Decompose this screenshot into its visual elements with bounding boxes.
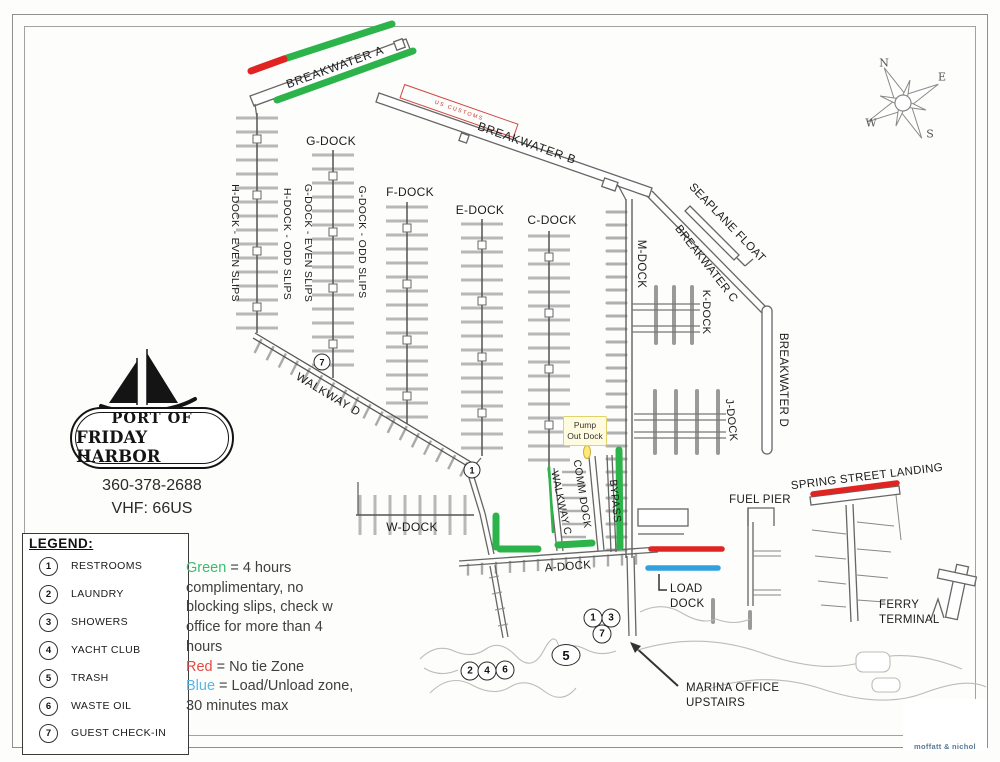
legend-label-yacht-club: YACHT CLUB (71, 644, 141, 656)
green-key-word: Green (186, 560, 226, 576)
brand-logo: moffatt & nichol (903, 699, 987, 751)
legend-label-waste-oil: WASTE OIL (71, 700, 131, 712)
note-line-green: Green = 4 hours (186, 559, 411, 579)
color-key-notes: Green = 4 hours complimentary, no blocki… (186, 559, 411, 717)
legend-item-guest-checkin: 7 GUEST CHECK-IN (0, 724, 185, 742)
legend-title: LEGEND: (29, 536, 93, 551)
legend-item-laundry: 2 LAUNDRY (0, 585, 185, 603)
label-g-dock-even: G-DOCK - EVEN SLIPS (302, 184, 314, 302)
note-line: blocking slips, check w (186, 598, 411, 618)
legend-label-showers: SHOWERS (71, 616, 128, 628)
note-line: complimentary, no (186, 579, 411, 599)
label-c-dock: C-DOCK (527, 213, 576, 227)
fuel-pier-structure (748, 508, 781, 628)
marina-office-arrow (630, 642, 678, 686)
map-marker-guest-checkin-walkway: 7 (314, 354, 331, 371)
label-ferry-terminal-line2: TERMINAL (879, 614, 940, 626)
ferry-terminal-structure (931, 564, 976, 619)
port-logo-inner: PORT OF FRIDAY HARBOR (75, 412, 229, 464)
label-f-dock: F-DOCK (386, 185, 434, 199)
legend-marker-2: 2 (39, 585, 58, 604)
label-fuel-pier: FUEL PIER (729, 494, 791, 506)
legend-marker-1: 1 (39, 557, 58, 576)
red-key-rest: = No tie Zone (213, 659, 304, 675)
blue-key-rest: = Load/Unload zone, (215, 678, 353, 694)
brand-name: moffatt & nichol (914, 742, 976, 751)
green-zone-walkway-c-foot (558, 543, 592, 545)
compass-w: W (865, 117, 876, 130)
legend-marker-4: 4 (39, 641, 58, 660)
label-h-dock-even: H-DOCK - EVEN SLIPS (229, 184, 241, 302)
sailboat-icon (101, 349, 195, 412)
legend-marker-6: 6 (39, 697, 58, 716)
port-logo-line2: FRIDAY HARBOR (76, 428, 228, 466)
note-line-blue: Blue = Load/Unload zone, (186, 677, 411, 697)
label-k-dock: K-DOCK (700, 290, 712, 335)
note-line: office for more than 4 (186, 618, 411, 638)
map-marker-7: 7 (593, 625, 612, 644)
red-zone-breakwater-a (251, 59, 284, 71)
legend-marker-5: 5 (39, 669, 58, 688)
legend-item-trash: 5 TRASH (0, 669, 185, 687)
port-vhf: VHF: 66US (112, 500, 193, 518)
label-breakwater-d: BREAKWATER D (777, 333, 789, 427)
legend-label-laundry: LAUNDRY (71, 588, 124, 600)
note-line-red: Red = No tie Zone (186, 658, 411, 678)
map-marker-5: 5 (552, 644, 581, 666)
blue-key-word: Blue (186, 678, 215, 694)
green-key-rest: = 4 hours (226, 560, 291, 576)
pump-out-dock-box: Pump Out Dock (563, 416, 607, 446)
label-h-dock-odd: H-DOCK - ODD SLIPS (281, 188, 293, 300)
launch-pier (489, 565, 508, 638)
map-marker-restrooms-walkway: 1 (464, 462, 481, 479)
map-marker-6: 6 (496, 661, 515, 680)
label-ferry-terminal-line1: FERRY (879, 599, 919, 611)
legend-marker-7: 7 (39, 724, 58, 743)
legend-label-guest-checkin: GUEST CHECK-IN (71, 727, 166, 739)
label-e-dock: E-DOCK (456, 203, 504, 217)
port-logo: PORT OF FRIDAY HARBOR (70, 407, 234, 469)
label-load-dock-line1: LOAD (670, 583, 703, 595)
label-g-dock: G-DOCK (306, 134, 356, 148)
note-line: 30 minutes max (186, 697, 411, 717)
legend-item-yacht-club: 4 YACHT CLUB (0, 641, 185, 659)
pump-out-line2: Out Dock (567, 431, 602, 442)
label-m-dock: M-DOCK (635, 240, 647, 288)
port-logo-line1: PORT OF (111, 410, 192, 427)
label-g-dock-odd: G-DOCK - ODD SLIPS (356, 186, 368, 299)
compass-rose-icon (849, 49, 957, 157)
legend-label-trash: TRASH (71, 672, 109, 684)
breakwater-d-structure (762, 306, 772, 454)
compass-s: S (926, 128, 934, 141)
label-marina-office-line1: MARINA OFFICE (686, 682, 779, 694)
red-key-word: Red (186, 659, 213, 675)
compass-n: N (879, 57, 889, 70)
port-phone: 360-378-2688 (102, 477, 202, 495)
label-marina-office-line2: UPSTAIRS (686, 697, 745, 709)
map-marker-4: 4 (478, 662, 497, 681)
legend-item-showers: 3 SHOWERS (0, 613, 185, 631)
compass-e: E (938, 71, 946, 84)
comm-dock-structure (589, 456, 604, 551)
dock-linework (236, 113, 726, 576)
marina-map-page: BREAKWATER A BREAKWATER B US CUSTOMS SEA… (0, 0, 1000, 762)
label-load-dock-line2: DOCK (670, 598, 704, 610)
pump-out-line1: Pump (574, 420, 596, 431)
label-w-dock: W-DOCK (386, 520, 438, 534)
note-line: hours (186, 638, 411, 658)
legend-item-waste-oil: 6 WASTE OIL (0, 697, 185, 715)
legend-marker-3: 3 (39, 613, 58, 632)
legend-item-restrooms: 1 RESTROOMS (0, 557, 185, 575)
legend-label-restrooms: RESTROOMS (71, 560, 142, 572)
pump-out-marker (584, 446, 591, 459)
